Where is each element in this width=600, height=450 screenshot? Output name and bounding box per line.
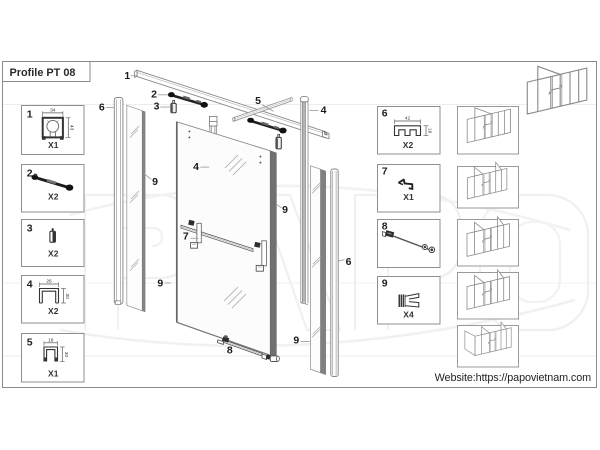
svg-text:7: 7 — [183, 231, 189, 243]
svg-text:6: 6 — [99, 101, 105, 113]
svg-text:X1: X1 — [48, 369, 59, 379]
svg-text:4: 4 — [27, 278, 33, 290]
svg-text:X4: X4 — [403, 310, 414, 320]
svg-text:5: 5 — [27, 336, 33, 348]
svg-text:9: 9 — [282, 204, 288, 216]
svg-text:30: 30 — [63, 352, 69, 358]
svg-text:43: 43 — [69, 125, 75, 131]
svg-text:X2: X2 — [403, 140, 414, 150]
svg-text:X2: X2 — [48, 249, 59, 259]
svg-text:X1: X1 — [48, 140, 59, 150]
svg-text:9: 9 — [152, 176, 158, 188]
svg-text:16: 16 — [427, 128, 433, 134]
svg-text:9: 9 — [293, 335, 299, 347]
svg-text:42: 42 — [405, 116, 411, 122]
svg-text:Website:https://papovietnam.co: Website:https://papovietnam.com — [435, 372, 591, 384]
svg-text:26: 26 — [46, 279, 52, 285]
svg-text:18: 18 — [48, 337, 54, 343]
svg-text:5: 5 — [255, 95, 261, 107]
svg-text:6: 6 — [346, 256, 352, 268]
svg-text:6: 6 — [382, 107, 388, 119]
svg-text:2: 2 — [151, 88, 157, 100]
svg-text:1: 1 — [124, 70, 130, 82]
svg-text:X2: X2 — [48, 306, 59, 316]
svg-text:8: 8 — [227, 345, 233, 357]
svg-text:3: 3 — [27, 222, 33, 234]
svg-text:X2: X2 — [48, 192, 59, 202]
svg-text:Profile PT 08: Profile PT 08 — [10, 67, 76, 79]
svg-text:9: 9 — [157, 278, 163, 290]
svg-text:3: 3 — [154, 101, 160, 113]
svg-text:30: 30 — [64, 293, 70, 299]
svg-text:X1: X1 — [403, 192, 414, 202]
svg-text:9: 9 — [382, 277, 388, 289]
svg-text:1: 1 — [27, 108, 33, 120]
svg-text:7: 7 — [382, 165, 388, 177]
svg-text:4: 4 — [321, 104, 327, 116]
svg-text:34: 34 — [50, 107, 56, 113]
svg-text:4: 4 — [193, 161, 199, 173]
